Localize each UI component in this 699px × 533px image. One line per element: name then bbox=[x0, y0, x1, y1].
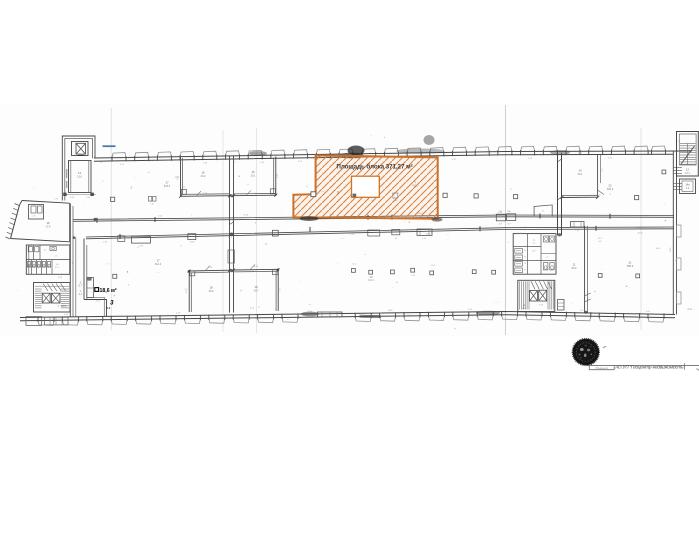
svg-text:7.46: 7.46 bbox=[150, 204, 154, 206]
svg-text:75: 75 bbox=[524, 257, 526, 259]
svg-text:14: 14 bbox=[578, 169, 582, 173]
svg-text:676.4: 676.4 bbox=[164, 185, 171, 188]
svg-text:30.1: 30.1 bbox=[251, 175, 256, 178]
svg-text:21: 21 bbox=[628, 261, 632, 265]
svg-text:1.5: 1.5 bbox=[546, 257, 549, 259]
svg-text:18,6 м²: 18,6 м² bbox=[100, 288, 117, 294]
svg-text:10.1: 10.1 bbox=[685, 172, 690, 175]
svg-text:17: 17 bbox=[165, 181, 169, 185]
svg-text:Площадь блока 371,27 м²: Площадь блока 371,27 м² bbox=[336, 162, 412, 170]
svg-text:Начальник: Начальник bbox=[596, 367, 609, 370]
svg-text:13: 13 bbox=[78, 171, 82, 175]
svg-text:74: 74 bbox=[524, 250, 526, 252]
svg-text:23.5: 23.5 bbox=[61, 305, 66, 308]
svg-text:22: 22 bbox=[608, 184, 612, 188]
svg-text:77: 77 bbox=[524, 270, 526, 272]
svg-text:17: 17 bbox=[156, 259, 160, 263]
svg-text:30.2: 30.2 bbox=[201, 175, 206, 178]
svg-text:2.4: 2.4 bbox=[106, 306, 110, 310]
svg-text:11: 11 bbox=[573, 263, 576, 267]
svg-text:8: 8 bbox=[337, 191, 339, 195]
svg-text:14.85: 14.85 bbox=[670, 247, 672, 253]
svg-text:с: с bbox=[555, 203, 556, 205]
svg-text:46.48: 46.48 bbox=[637, 233, 643, 235]
svg-text:47.01: 47.01 bbox=[425, 234, 431, 236]
svg-text:614.6: 614.6 bbox=[368, 280, 374, 282]
svg-text:300.9: 300.9 bbox=[607, 188, 614, 191]
svg-text:30.7: 30.7 bbox=[254, 290, 259, 293]
svg-text:С1.2: С1.2 bbox=[598, 238, 603, 240]
svg-text:2.1: 2.1 bbox=[55, 256, 58, 258]
svg-text:АО УП "Геоцентр-недвижимость": АО УП "Геоцентр-недвижимость" bbox=[614, 364, 685, 369]
svg-text:2.1: 2.1 bbox=[533, 243, 536, 245]
svg-text:С1.5: С1.5 bbox=[431, 265, 436, 267]
svg-text:30.9: 30.9 bbox=[209, 290, 214, 293]
svg-text:С1.2: С1.2 bbox=[352, 264, 357, 266]
svg-text:20.1: 20.1 bbox=[578, 173, 583, 176]
svg-text:19: 19 bbox=[254, 285, 258, 289]
svg-text:14.85: 14.85 bbox=[189, 242, 195, 244]
svg-text:614.4: 614.4 bbox=[155, 263, 162, 266]
svg-text:16: 16 bbox=[46, 221, 50, 225]
svg-text:15: 15 bbox=[251, 170, 255, 174]
svg-text:14а: 14а bbox=[685, 183, 690, 187]
svg-text:16: 16 bbox=[201, 171, 205, 175]
svg-text:13.6: 13.6 bbox=[77, 175, 82, 178]
svg-text:17.6: 17.6 bbox=[46, 225, 51, 228]
svg-text:586.9: 586.9 bbox=[627, 265, 634, 268]
svg-text:2 эт.: 2 эт. bbox=[687, 307, 692, 311]
svg-text:2.09: 2.09 bbox=[532, 251, 536, 253]
svg-text:76: 76 bbox=[524, 263, 526, 265]
svg-text:411.1: 411.1 bbox=[412, 184, 418, 187]
svg-text:С: С bbox=[414, 180, 416, 184]
svg-text:14.85: 14.85 bbox=[387, 310, 393, 312]
svg-text:53.9: 53.9 bbox=[572, 267, 577, 270]
svg-text:18: 18 bbox=[209, 286, 213, 290]
